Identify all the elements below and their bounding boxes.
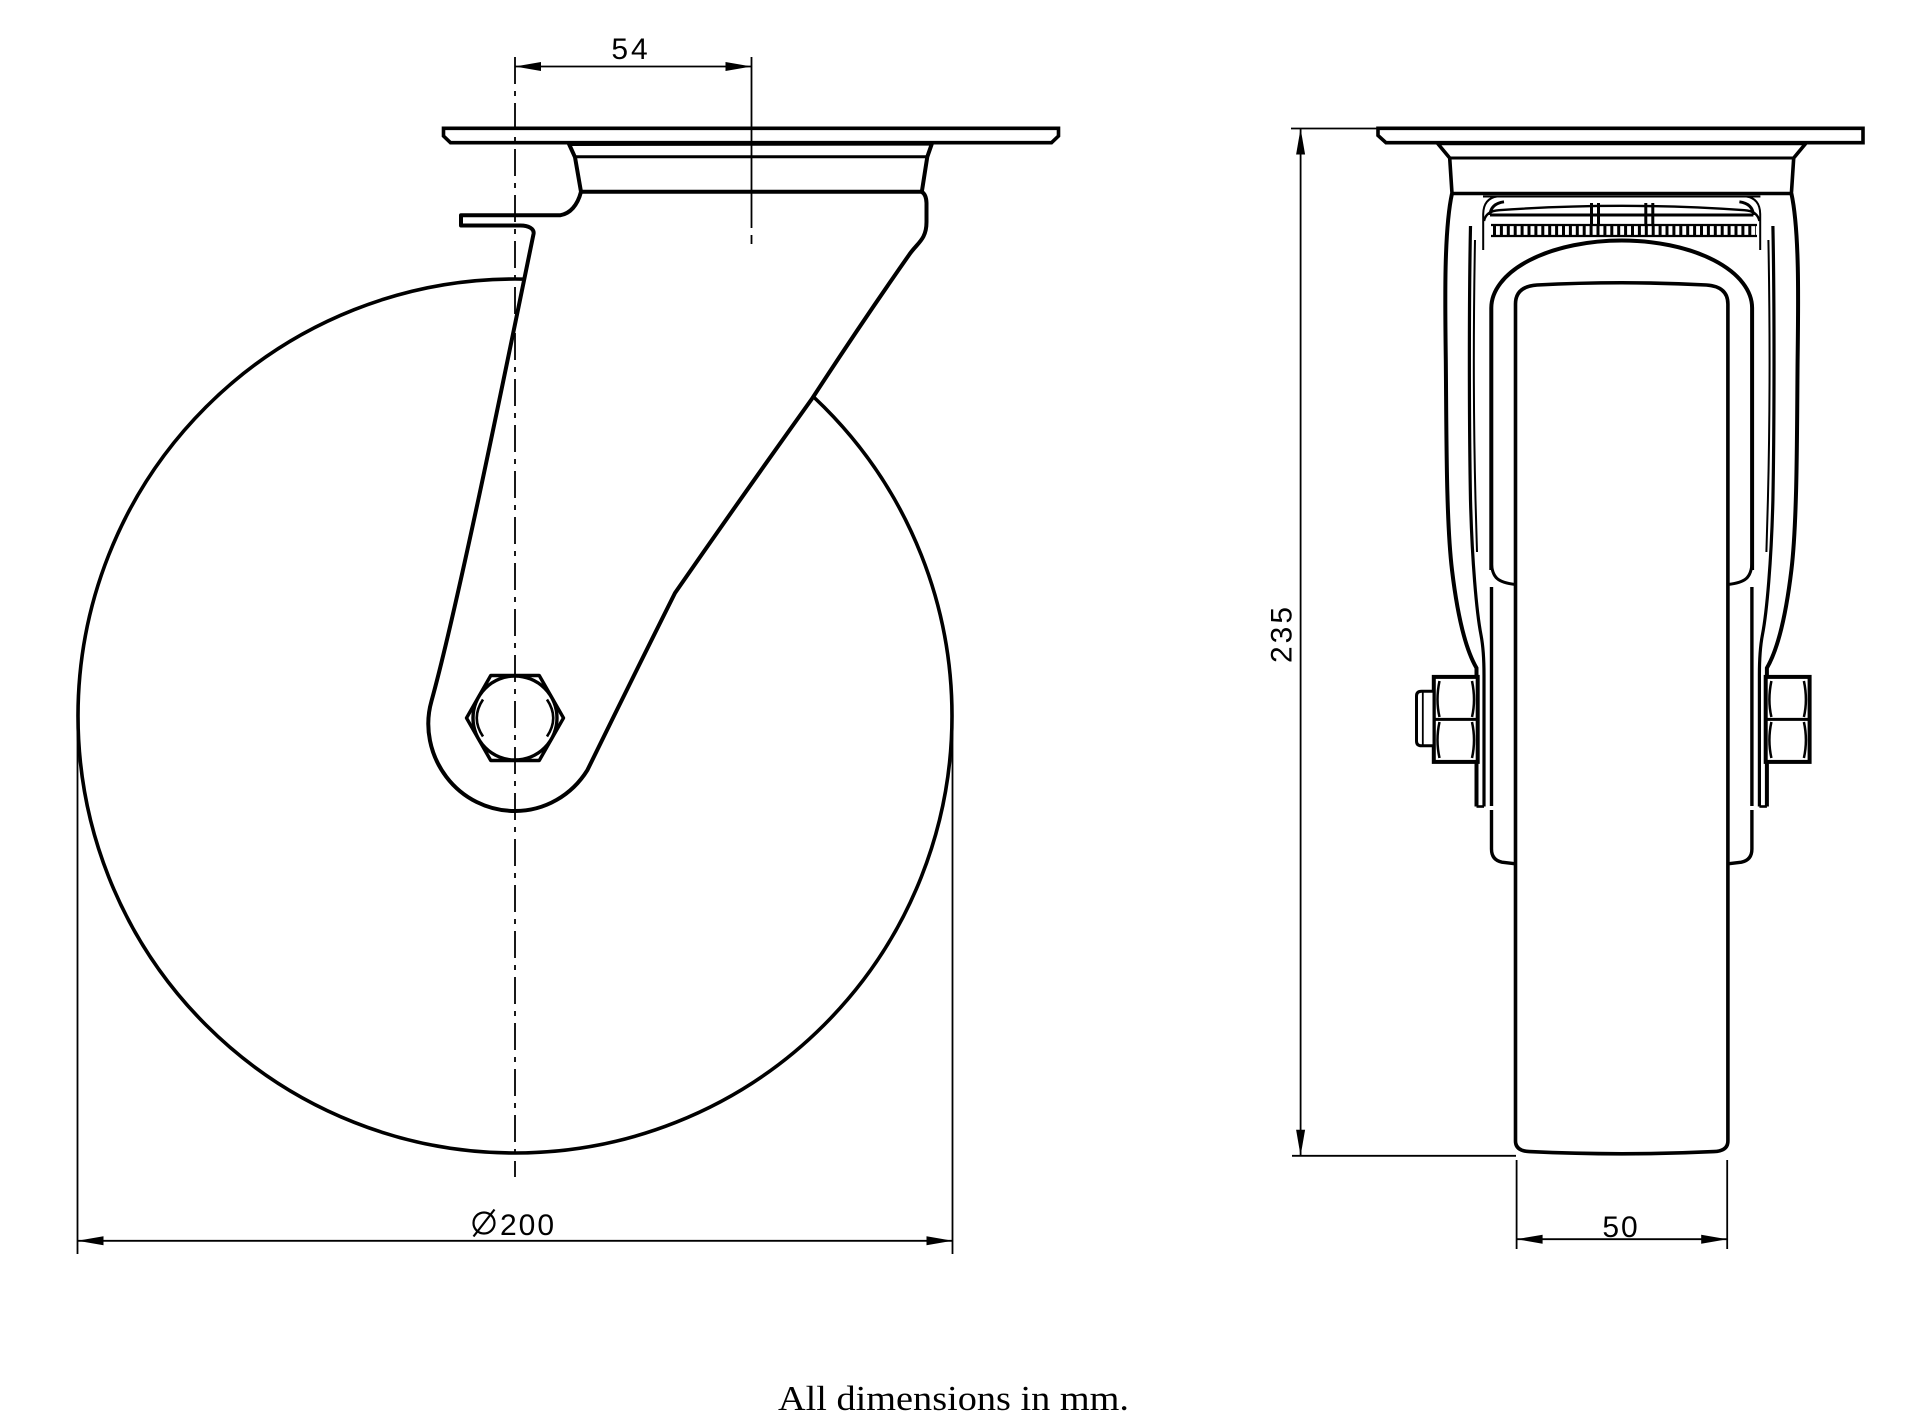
svg-text:235: 235 (1266, 604, 1299, 663)
svg-text:54: 54 (611, 33, 650, 66)
svg-text:All dimensions in mm.: All dimensions in mm. (778, 1379, 1129, 1418)
svg-text:200: 200 (500, 1209, 556, 1242)
svg-text:50: 50 (1602, 1211, 1639, 1244)
